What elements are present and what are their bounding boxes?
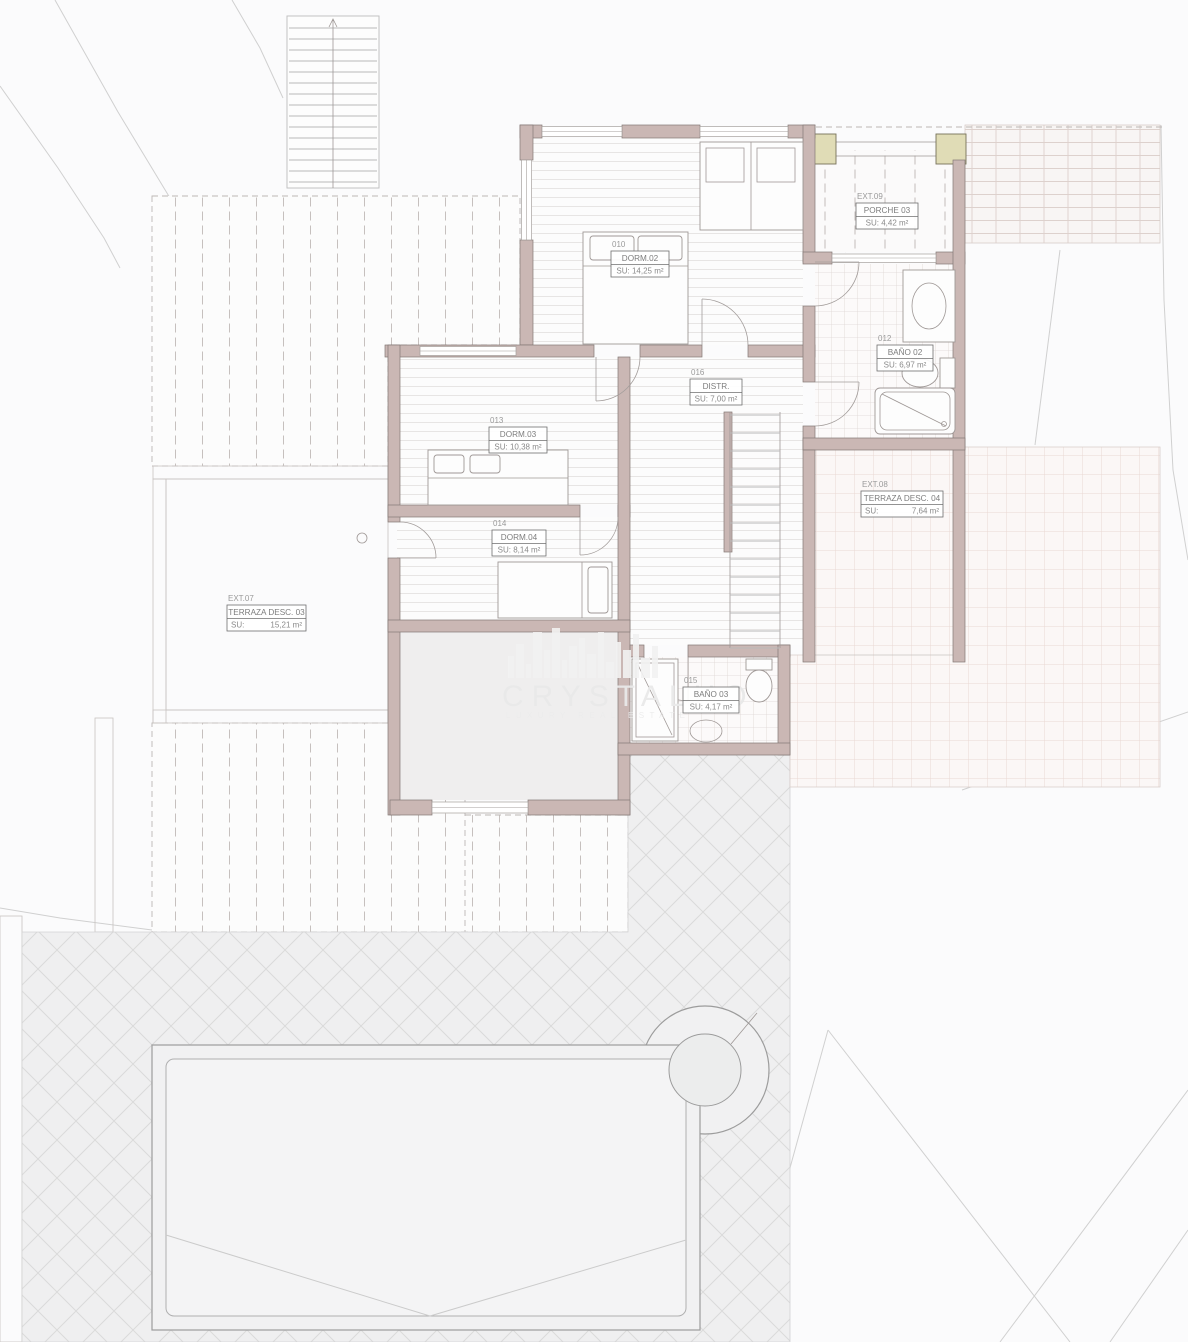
room-area: SU: 4,17 m² <box>690 702 733 711</box>
room-area-value: 15,21 m² <box>270 620 302 629</box>
room-area-label: SU: <box>231 620 244 629</box>
room-name: DORM.02 <box>622 254 659 263</box>
double-bed-dorm02 <box>583 232 688 344</box>
floor-plan-canvas: CRYSTALHO LUXURY REAL ESTATE 010 DORM.02… <box>0 0 1188 1342</box>
window <box>542 127 622 137</box>
room-name: PORCHE 03 <box>864 206 911 215</box>
vanity-counter <box>903 270 955 342</box>
floor-porche <box>815 150 953 252</box>
room-number: EXT.07 <box>228 594 254 603</box>
room-number: 014 <box>493 519 507 528</box>
room-number: 013 <box>490 416 504 425</box>
room-area: SU: 4,42 m² <box>866 218 909 227</box>
window <box>432 802 528 813</box>
double-bed-dorm03 <box>428 450 568 505</box>
room-area: SU: 7,00 m² <box>695 394 738 403</box>
window <box>700 127 788 137</box>
room-name: DORM.03 <box>500 430 537 439</box>
door-knob-mark <box>357 533 367 543</box>
room-name: TERRAZA DESC. 03 <box>228 608 305 617</box>
room-name: DORM.04 <box>501 533 538 542</box>
room-name: DISTR. <box>703 382 730 391</box>
wardrobe-dorm02 <box>700 142 803 230</box>
watermark-tagline: LUXURY REAL ESTATE <box>506 711 690 720</box>
room-area: SU: 8,14 m² <box>498 545 541 554</box>
room-number: 016 <box>691 368 705 377</box>
toilet-tank <box>746 659 772 670</box>
room-area: SU: 10,38 m² <box>494 442 541 451</box>
pool-basin <box>166 1059 686 1316</box>
room-area-label: SU: <box>865 506 878 515</box>
room-number: EXT.08 <box>862 480 888 489</box>
window <box>832 254 936 263</box>
exterior-staircase <box>287 16 379 188</box>
pool-spiral-inner <box>669 1034 741 1106</box>
room-area-value: 7,64 m² <box>912 506 939 515</box>
room-tag-terraza03: EXT.07 TERRAZA DESC. 03 SU: 15,21 m² <box>227 594 306 631</box>
single-bed-dorm04 <box>498 562 612 618</box>
floor-plan-page: CRYSTALHO LUXURY REAL ESTATE 010 DORM.02… <box>0 0 1188 1342</box>
terrace-ext07 <box>166 479 388 710</box>
room-number: 015 <box>684 676 698 685</box>
room-area: SU: 6,97 m² <box>884 360 927 369</box>
top-right-paving <box>965 125 1160 243</box>
toilet-tank <box>940 358 955 388</box>
bathtub <box>875 388 955 434</box>
room-number: 012 <box>878 334 892 343</box>
window <box>420 347 516 356</box>
room-area: SU: 14,25 m² <box>616 266 663 275</box>
room-name: BAÑO 03 <box>694 689 729 699</box>
room-name: BAÑO 02 <box>888 347 923 357</box>
room-number: 010 <box>612 240 626 249</box>
right-paving <box>790 447 1160 787</box>
room-name: TERRAZA DESC. 04 <box>864 494 941 503</box>
pool <box>152 1006 769 1330</box>
window <box>522 160 532 240</box>
porch-post <box>936 134 966 164</box>
room-number: EXT.09 <box>857 192 883 201</box>
